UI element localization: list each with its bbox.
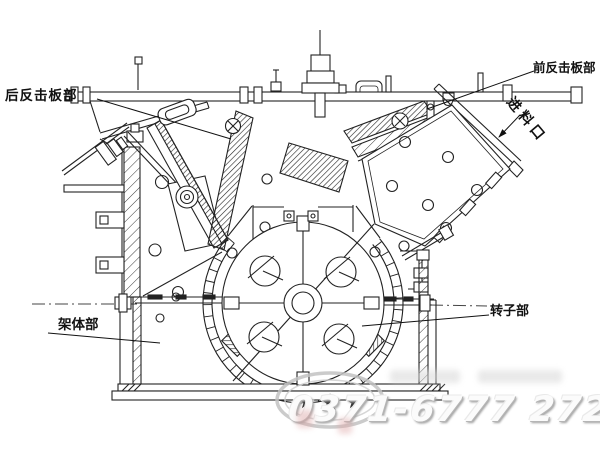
label-front-impact-plate: 前反击板部	[533, 60, 596, 75]
label-rear-impact-plate: 后反击板部	[5, 87, 78, 104]
watermark-smudge-red	[338, 418, 352, 434]
watermark-smudge	[478, 370, 562, 383]
watermark-phone: 0371-6777 2727	[285, 390, 600, 440]
tension-bolt-tower	[302, 30, 339, 117]
machine-body	[62, 30, 582, 403]
center-deflector-plate	[280, 143, 348, 192]
watermark-smudge-red	[297, 410, 313, 428]
leader-frame-body	[48, 333, 160, 343]
rear-impact-plate-assembly	[62, 98, 272, 251]
label-frame-body: 架体部	[57, 316, 99, 333]
label-rotor: 转子部	[490, 303, 529, 319]
diagram-page: 后反击板部 前反击板部 进料口 架体部 转子部 ★ ★ ★ 0371-6777 …	[0, 0, 600, 450]
rotor-assembly	[222, 211, 384, 385]
watermark-smudge	[390, 370, 460, 383]
